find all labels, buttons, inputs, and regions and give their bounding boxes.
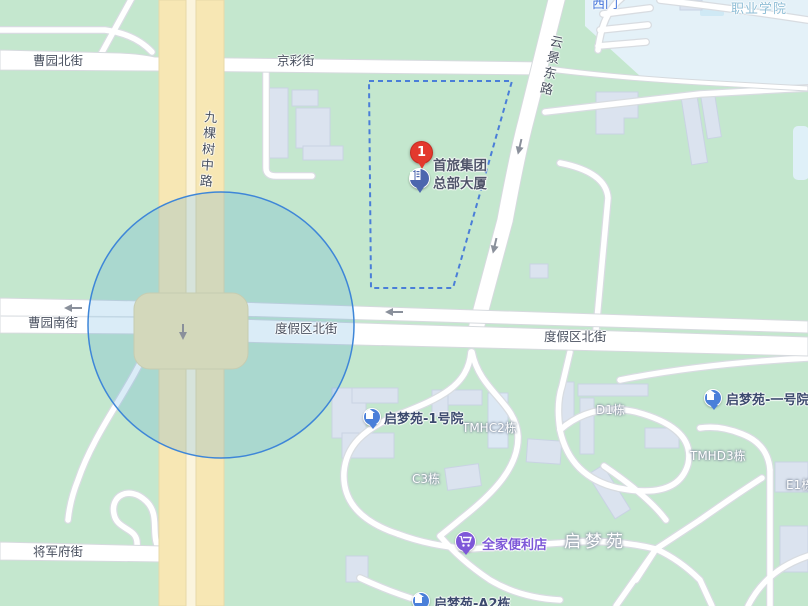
poi-label-qimengyuan-a2[interactable]: 启梦苑-A2栋 [434,593,511,606]
building-label-c3: C3栋 [412,470,440,487]
street-label-jingcai: 京彩街 [277,50,315,69]
poi-label-familymart[interactable]: 全家便利店 [482,534,547,553]
building-label-tmhc2: TMHC2栋 [462,419,517,436]
poi-icon-familymart[interactable] [455,531,476,552]
poi-label-qimengyuan-yihao-yard[interactable]: 启梦苑-一号院 [726,389,808,408]
company-poi-pin[interactable] [409,168,430,189]
numbered-marker-pin[interactable]: 1 [410,141,433,164]
street-label-caoyuan-north: 曹园北街 [33,50,83,69]
community-label-qimengyuan: 启梦苑 [564,527,627,552]
marker-title-line1: 首旅集团 [433,157,487,175]
building-label-tmhd3: TMHD3栋 [690,447,746,464]
map-canvas[interactable]: 曹园北街 京彩街 九棵树中路 云景东路 曹园南街 度假区北街 度假区北街 将军府… [0,0,808,606]
marker-title[interactable]: 首旅集团 总部大厦 [433,157,487,193]
marker-title-line2: 总部大厦 [433,175,487,193]
street-label-jiangjunfu: 将军府街 [33,541,83,560]
poi-icon-qimengyuan-yihao-yard[interactable] [704,389,722,407]
building-label-e1: E1栋 [786,476,808,493]
map-tiles [0,0,808,606]
street-label-dujiaqu-west: 度假区北街 [275,318,338,337]
poi-icon-qimengyuan-no1-yard[interactable] [363,408,381,426]
area-label-college: 职业学院 [731,0,787,17]
marker-number: 1 [417,145,426,160]
street-label-dujiaqu-east: 度假区北街 [544,326,607,345]
poi-label-qimengyuan-no1-yard[interactable]: 启梦苑-1号院 [384,408,463,427]
poi-icon-qimengyuan-a2[interactable] [412,592,430,606]
building-label-d1: D1栋 [596,401,625,418]
gate-label-west-gate: 西门 [592,0,618,12]
street-label-caoyuan-south: 曹园南街 [28,312,78,331]
